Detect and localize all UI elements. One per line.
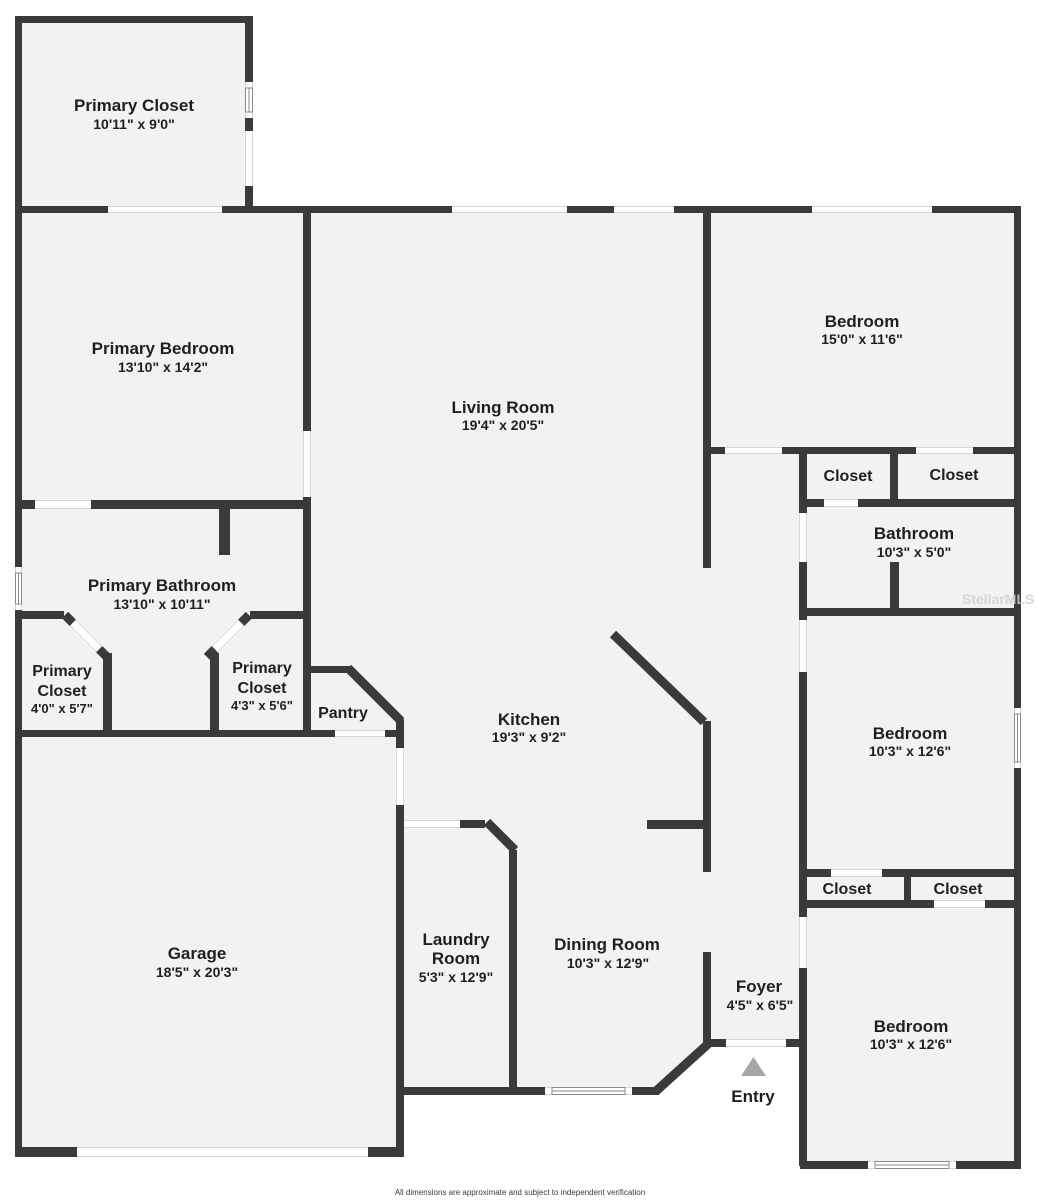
svg-text:4'0" x 5'7": 4'0" x 5'7" (31, 701, 93, 716)
svg-text:4'5" x 6'5": 4'5" x 6'5" (727, 997, 794, 1013)
svg-text:Closet: Closet (238, 680, 288, 697)
svg-text:Closet: Closet (38, 683, 88, 700)
svg-text:19'3" x 9'2": 19'3" x 9'2" (492, 729, 566, 745)
svg-text:All dimensions are approximate: All dimensions are approximate and subje… (395, 1188, 645, 1197)
svg-text:19'4" x 20'5": 19'4" x 20'5" (462, 417, 544, 433)
svg-text:Pantry: Pantry (318, 705, 368, 722)
svg-text:Laundry: Laundry (422, 930, 490, 949)
svg-text:Kitchen: Kitchen (498, 710, 560, 729)
svg-text:Foyer: Foyer (736, 977, 783, 996)
svg-text:Primary: Primary (32, 663, 92, 680)
svg-text:Closet: Closet (930, 467, 980, 484)
svg-text:4'3" x 5'6": 4'3" x 5'6" (231, 698, 293, 713)
svg-text:Room: Room (432, 949, 480, 968)
svg-text:Bedroom: Bedroom (874, 1017, 949, 1036)
svg-text:StellarMLS: StellarMLS (962, 591, 1034, 607)
svg-text:15'0" x 11'6": 15'0" x 11'6" (821, 331, 902, 347)
svg-text:Closet: Closet (823, 881, 873, 898)
svg-text:Bathroom: Bathroom (874, 524, 954, 543)
svg-text:Living Room: Living Room (452, 398, 555, 417)
svg-text:Bedroom: Bedroom (873, 724, 948, 743)
svg-text:18'5" x 20'3": 18'5" x 20'3" (156, 964, 238, 980)
svg-text:13'10" x 10'11": 13'10" x 10'11" (113, 596, 210, 612)
svg-text:Closet: Closet (824, 468, 874, 485)
svg-text:10'3" x 12'6": 10'3" x 12'6" (869, 743, 951, 759)
svg-text:Garage: Garage (168, 944, 227, 963)
svg-text:Bedroom: Bedroom (825, 312, 900, 331)
svg-text:Dining Room: Dining Room (554, 935, 660, 954)
svg-text:10'3" x 5'0": 10'3" x 5'0" (877, 544, 951, 560)
svg-text:10'3" x 12'6": 10'3" x 12'6" (870, 1036, 952, 1052)
svg-text:Primary Bedroom: Primary Bedroom (92, 339, 235, 358)
svg-text:Closet: Closet (934, 881, 984, 898)
svg-text:13'10" x 14'2": 13'10" x 14'2" (118, 359, 208, 375)
svg-text:Primary: Primary (232, 660, 292, 677)
svg-text:Primary Bathroom: Primary Bathroom (88, 576, 236, 595)
svg-text:10'11" x 9'0": 10'11" x 9'0" (93, 116, 174, 132)
svg-text:10'3" x 12'9": 10'3" x 12'9" (567, 955, 649, 971)
svg-text:Entry: Entry (731, 1087, 775, 1106)
svg-text:5'3" x 12'9": 5'3" x 12'9" (419, 969, 493, 985)
svg-text:Primary Closet: Primary Closet (74, 96, 194, 115)
